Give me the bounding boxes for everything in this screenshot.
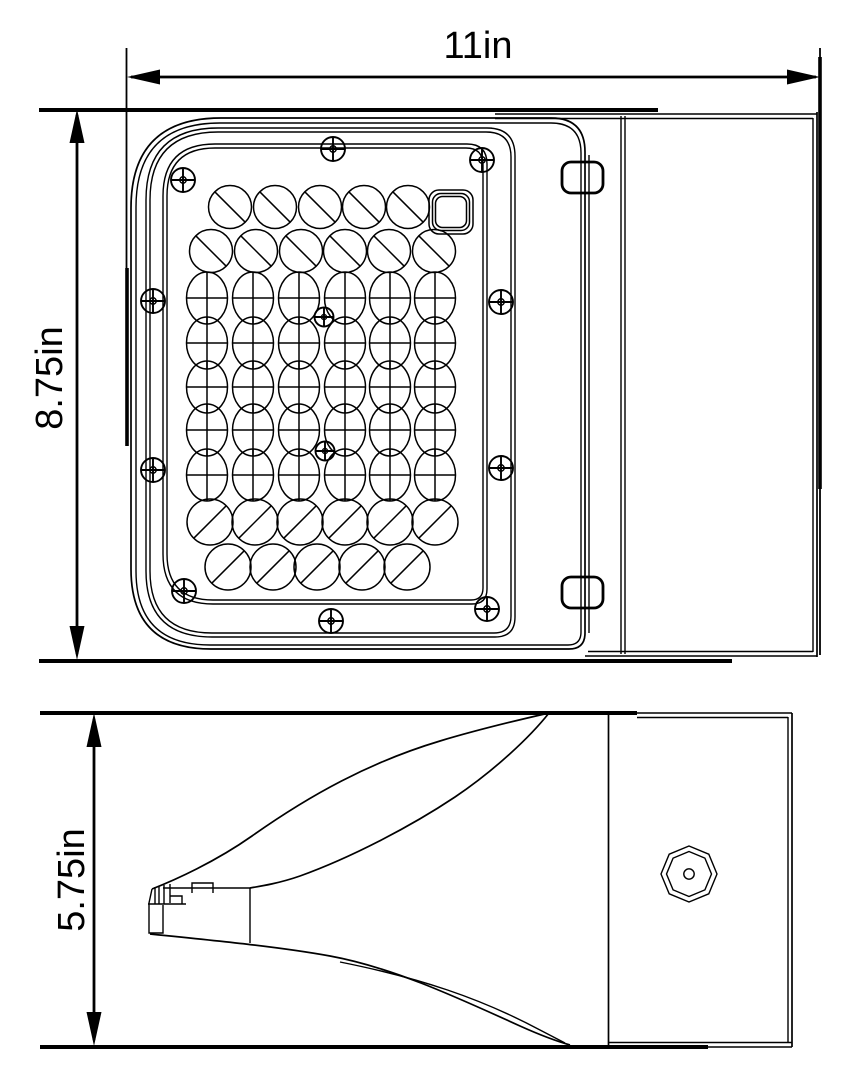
- led-array: [187, 186, 474, 591]
- housing-profile: [148, 713, 570, 1045]
- arrowhead-up-icon: [70, 109, 85, 143]
- led-lens-slash-down: [280, 230, 323, 273]
- led-lens-slash-down: [190, 230, 233, 273]
- led-lens-cross: [415, 272, 456, 324]
- led-lens-slash-up: [322, 499, 368, 545]
- led-lens-cross: [233, 449, 274, 501]
- led-lens-cross: [187, 449, 228, 501]
- led-lens-slash-down: [254, 186, 297, 229]
- front-view: [39, 110, 817, 661]
- led-lens-slash-up: [384, 544, 430, 590]
- mounting-box: [495, 112, 817, 657]
- led-lens-slash-down: [209, 186, 252, 229]
- led-lens-cross: [325, 449, 366, 501]
- screw-icon: [470, 148, 494, 172]
- led-lens-slash-up: [412, 499, 458, 545]
- latch-tab-top: [562, 162, 603, 193]
- arrowhead-left-icon: [127, 70, 160, 85]
- technical-drawing-page: 11in 8.75in: [0, 0, 842, 1075]
- led-lens-cross: [187, 272, 228, 324]
- screw-icon: [172, 579, 196, 603]
- led-lens-cross: [325, 404, 366, 456]
- screw-icon: [315, 308, 334, 327]
- depth-dimension-label: 5.75in: [51, 828, 93, 932]
- screw-icon: [319, 609, 343, 633]
- led-lens-slash-down: [413, 230, 456, 273]
- arrowhead-right-icon: [787, 70, 820, 85]
- led-lens-slash-up: [277, 499, 323, 545]
- arrowhead-up-icon: [87, 713, 102, 747]
- led-lens-slash-up: [367, 499, 413, 545]
- dimension-height: 8.75in: [29, 109, 85, 660]
- led-lens-slash-down: [368, 230, 411, 273]
- dimension-depth: 5.75in: [51, 713, 102, 1046]
- screw-icon: [489, 290, 513, 314]
- led-lens-slash-down: [324, 230, 367, 273]
- led-lens-slash-up: [232, 499, 278, 545]
- led-lens-cross: [233, 404, 274, 456]
- fixture-dimension-drawing: 11in 8.75in: [0, 0, 842, 1075]
- arrowhead-down-icon: [70, 626, 85, 660]
- led-lens-cross: [279, 449, 320, 501]
- led-lens-cross: [187, 404, 228, 456]
- side-view: [40, 713, 792, 1047]
- led-lens-slash-down: [235, 230, 278, 273]
- led-lens-cross: [279, 272, 320, 324]
- led-lens-slash-down: [343, 186, 386, 229]
- led-lens-slash-down: [387, 186, 430, 229]
- dimension-width: 11in: [127, 25, 821, 655]
- led-lens-cross: [370, 404, 411, 456]
- arrowhead-down-icon: [87, 1012, 102, 1046]
- width-dimension-label: 11in: [443, 25, 512, 67]
- led-lens-slash-up: [250, 544, 296, 590]
- bezel-outline: [146, 128, 515, 637]
- led-lens-cross: [370, 449, 411, 501]
- screw-icon: [475, 597, 499, 621]
- led-lens-slash-up: [339, 544, 385, 590]
- screw-layer: [141, 137, 513, 633]
- led-lens-cross: [279, 404, 320, 456]
- height-dimension-label: 8.75in: [29, 326, 71, 430]
- led-lens-slash-up: [187, 499, 233, 545]
- led-lens-cross: [415, 449, 456, 501]
- led-lens-square: [429, 190, 473, 234]
- screw-icon: [321, 137, 345, 161]
- led-lens-slash-up: [205, 544, 251, 590]
- led-lens-slash-up: [294, 544, 340, 590]
- led-lens-cross: [415, 404, 456, 456]
- led-lens-slash-down: [299, 186, 342, 229]
- screw-icon: [141, 289, 165, 313]
- latch-tab-bottom: [562, 577, 603, 608]
- knockout-octagon-icon: [661, 846, 717, 902]
- screw-icon: [489, 456, 513, 480]
- screw-icon: [316, 442, 335, 461]
- led-lens-cross: [233, 272, 274, 324]
- screw-icon: [171, 168, 195, 192]
- screw-icon: [141, 458, 165, 482]
- led-lens-cross: [370, 272, 411, 324]
